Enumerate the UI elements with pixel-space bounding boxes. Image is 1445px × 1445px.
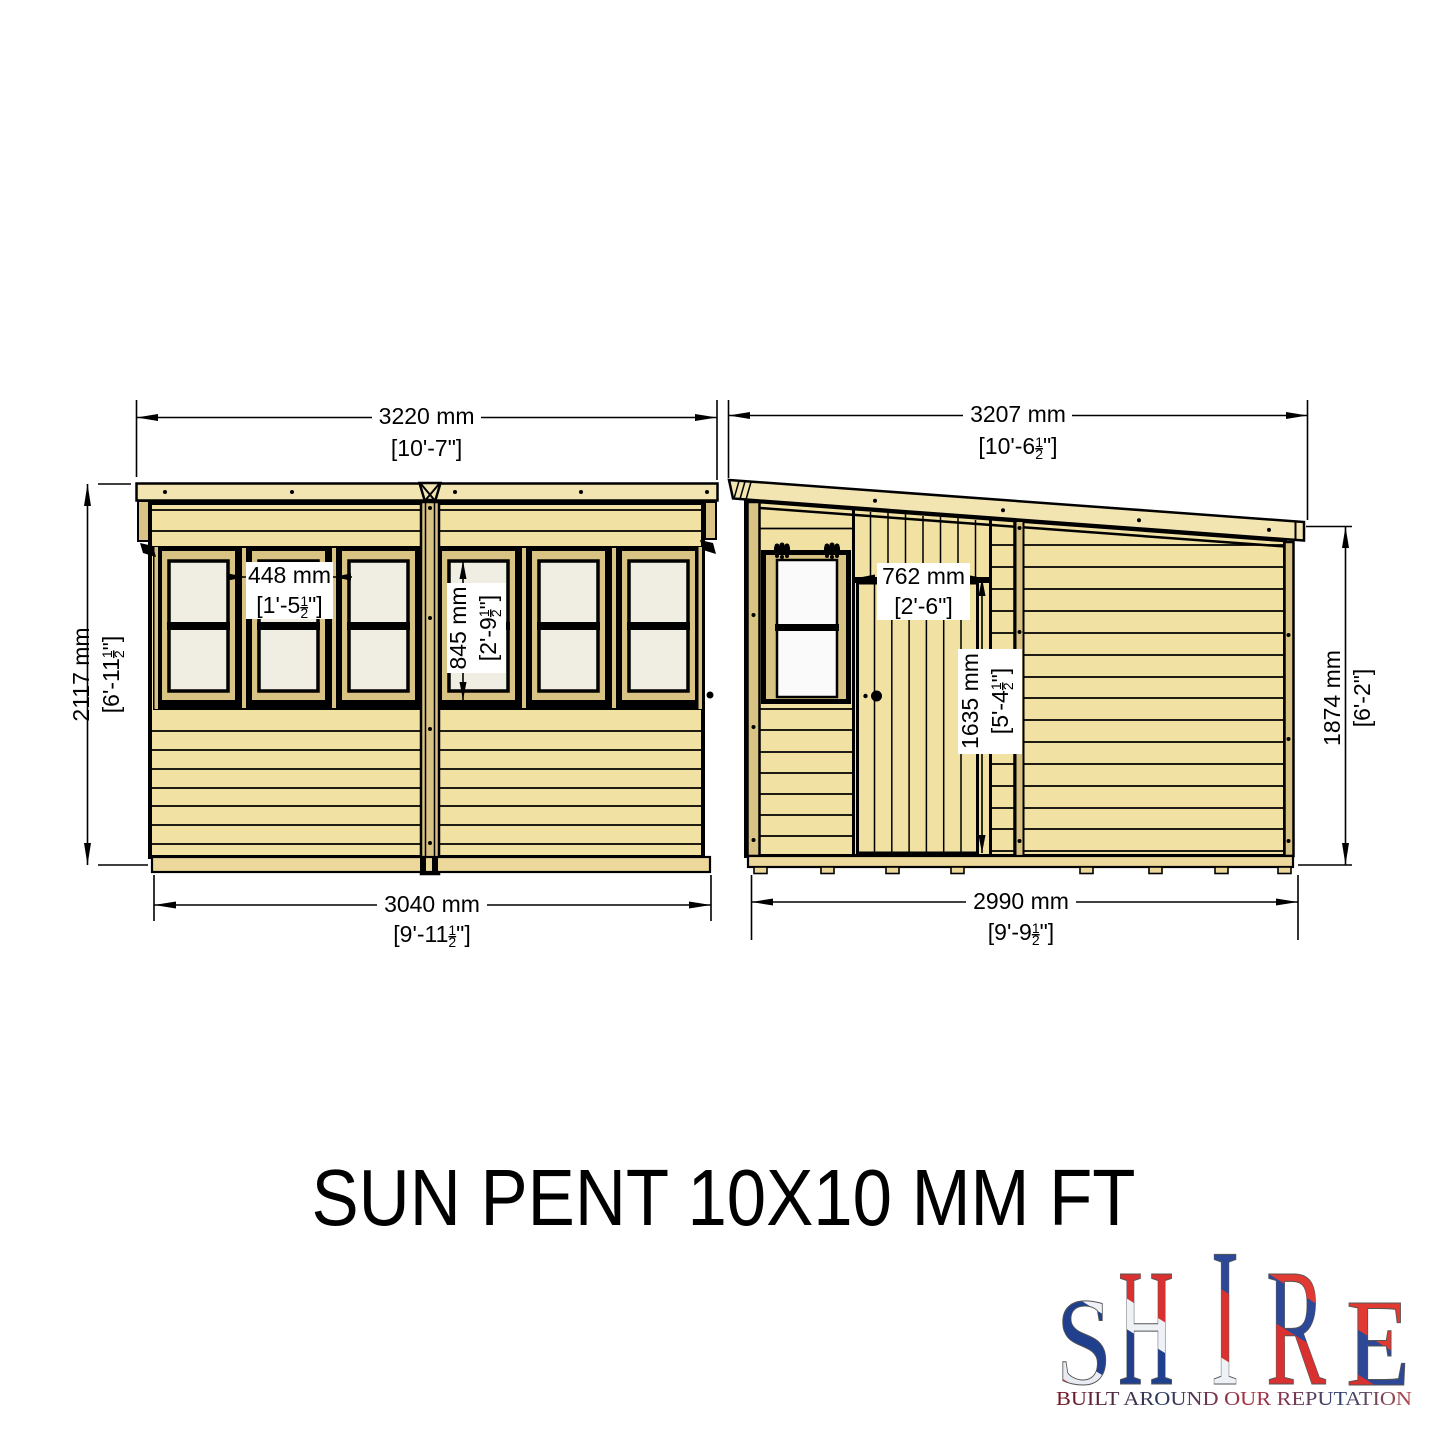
svg-text:448 mm: 448 mm	[248, 562, 331, 588]
svg-text:[9'-1112"]: [9'-1112"]	[393, 921, 470, 950]
svg-text:[2'-6"]: [2'-6"]	[894, 593, 953, 619]
svg-text:[1'-512"]: [1'-512"]	[256, 592, 322, 621]
svg-text:[10'-612"]: [10'-612"]	[978, 433, 1057, 462]
svg-text:845 mm[2'-912"]: 845 mm[2'-912"]	[445, 586, 504, 669]
svg-text:2117 mm[6'-1112"]: 2117 mm[6'-1112"]	[68, 627, 127, 721]
svg-text:[9'-912"]: [9'-912"]	[988, 919, 1054, 948]
svg-text:3207 mm: 3207 mm	[970, 401, 1066, 427]
svg-text:SUN PENT 10X10 MM FT: SUN PENT 10X10 MM FT	[312, 1153, 1136, 1242]
svg-text:762 mm: 762 mm	[882, 563, 965, 589]
svg-text:[10'-7"]: [10'-7"]	[391, 435, 462, 461]
svg-text:3220 mm: 3220 mm	[379, 403, 475, 429]
svg-text:BUILT AROUND OUR REPUTATION: BUILT AROUND OUR REPUTATION	[1056, 1389, 1412, 1410]
svg-text:3040 mm: 3040 mm	[384, 891, 480, 917]
svg-text:2990 mm: 2990 mm	[973, 888, 1069, 914]
